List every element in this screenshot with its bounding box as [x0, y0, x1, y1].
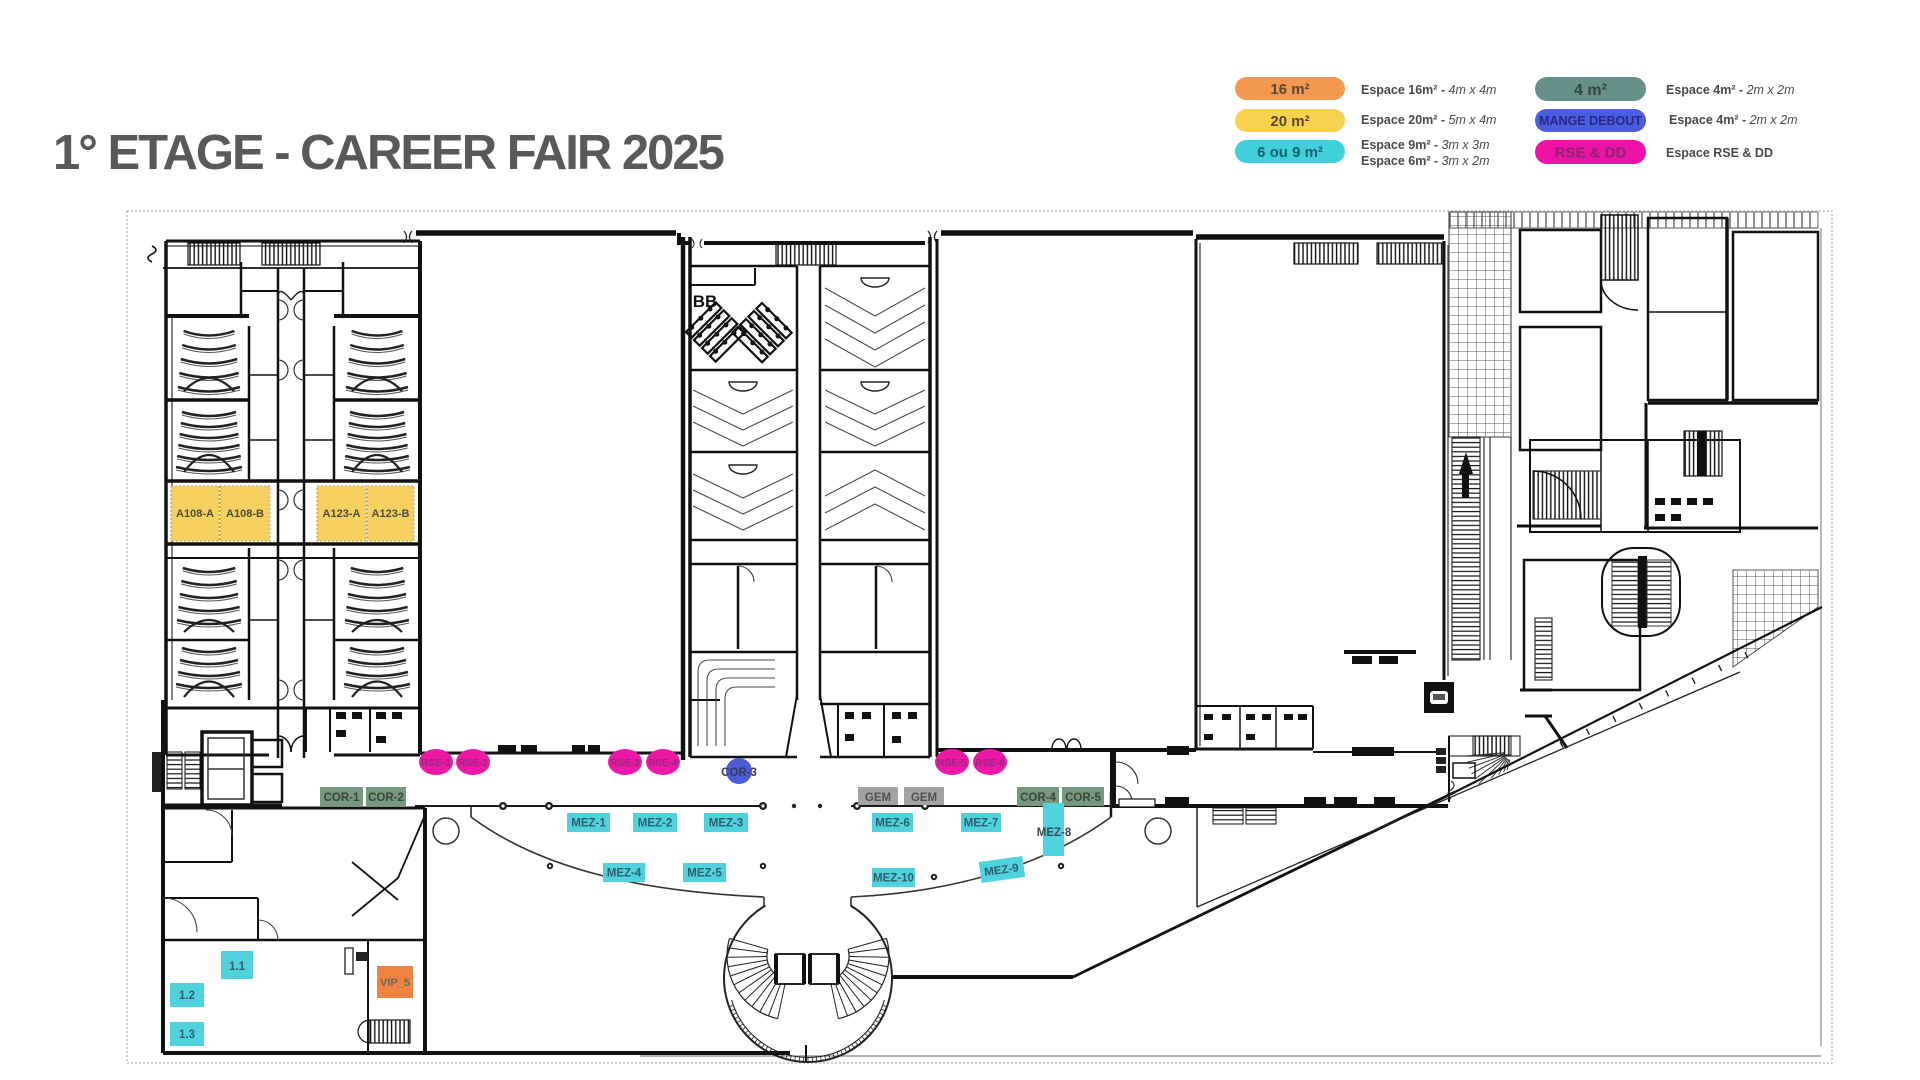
- svg-text:RSE-4: RSE-4: [648, 758, 678, 769]
- svg-text:MEZ-2: MEZ-2: [638, 818, 673, 830]
- svg-text:Espace 4m² - 2m x 2m: Espace 4m² - 2m x 2m: [1669, 113, 1798, 127]
- svg-text:RSE-5: RSE-5: [937, 758, 967, 769]
- svg-text:COR-4: COR-4: [1020, 792, 1056, 804]
- svg-text:MEZ-10: MEZ-10: [873, 873, 914, 885]
- svg-text:RSE-3: RSE-3: [610, 758, 640, 769]
- svg-text:Espace 6m² - 3m x 2m: Espace 6m² - 3m x 2m: [1361, 154, 1490, 168]
- svg-text:COR-2: COR-2: [368, 792, 404, 804]
- svg-text:Espace 16m² - 4m x 4m: Espace 16m² - 4m x 4m: [1361, 83, 1496, 97]
- svg-text:BB: BB: [693, 292, 718, 311]
- svg-text:MEZ-8: MEZ-8: [1037, 827, 1072, 839]
- svg-text:MEZ-5: MEZ-5: [687, 868, 722, 880]
- svg-text:MEZ-6: MEZ-6: [875, 818, 910, 830]
- svg-text:MEZ-3: MEZ-3: [709, 818, 744, 830]
- svg-text:RSE-1: RSE-1: [421, 758, 451, 769]
- svg-text:20 m²: 20 m²: [1270, 113, 1309, 130]
- svg-text:Espace RSE & DD: Espace RSE & DD: [1666, 146, 1773, 160]
- svg-text:Espace 20m² - 5m x 4m: Espace 20m² - 5m x 4m: [1361, 113, 1496, 127]
- svg-text:GEM: GEM: [865, 792, 891, 804]
- svg-text:16 m²: 16 m²: [1270, 81, 1309, 98]
- svg-text:Espace 9m² - 3m x 3m: Espace 9m² - 3m x 3m: [1361, 138, 1490, 152]
- svg-text:6 ou 9 m²: 6 ou 9 m²: [1257, 144, 1323, 161]
- svg-text:1° ETAGE - CAREER FAIR 2025: 1° ETAGE - CAREER FAIR 2025: [53, 126, 724, 180]
- svg-text:4 m²: 4 m²: [1574, 82, 1607, 99]
- svg-text:MEZ-1: MEZ-1: [571, 818, 606, 830]
- svg-text:COR-3: COR-3: [721, 767, 757, 779]
- svg-text:MEZ-7: MEZ-7: [964, 818, 999, 830]
- svg-text:COR-5: COR-5: [1065, 792, 1101, 804]
- svg-text:Espace 4m² - 2m x 2m: Espace 4m² - 2m x 2m: [1666, 83, 1795, 97]
- svg-text:VIP_5: VIP_5: [380, 977, 410, 989]
- svg-text:1.3: 1.3: [179, 1029, 195, 1041]
- svg-text:MEZ-4: MEZ-4: [607, 868, 642, 880]
- svg-text:RSE & DD: RSE & DD: [1555, 144, 1627, 161]
- svg-text:A123-A: A123-A: [323, 508, 361, 520]
- svg-text:RSE-6: RSE-6: [975, 758, 1005, 769]
- svg-text:A108-B: A108-B: [226, 508, 264, 520]
- svg-text:1.2: 1.2: [179, 990, 195, 1002]
- svg-text:GEM: GEM: [911, 792, 937, 804]
- svg-text:MANGE DEBOUT: MANGE DEBOUT: [1539, 114, 1642, 128]
- svg-text:A108-A: A108-A: [176, 508, 214, 520]
- svg-text:RSE-2: RSE-2: [458, 758, 488, 769]
- svg-text:1.1: 1.1: [229, 961, 246, 973]
- svg-text:A123-B: A123-B: [372, 508, 410, 520]
- svg-text:COR-1: COR-1: [324, 792, 360, 804]
